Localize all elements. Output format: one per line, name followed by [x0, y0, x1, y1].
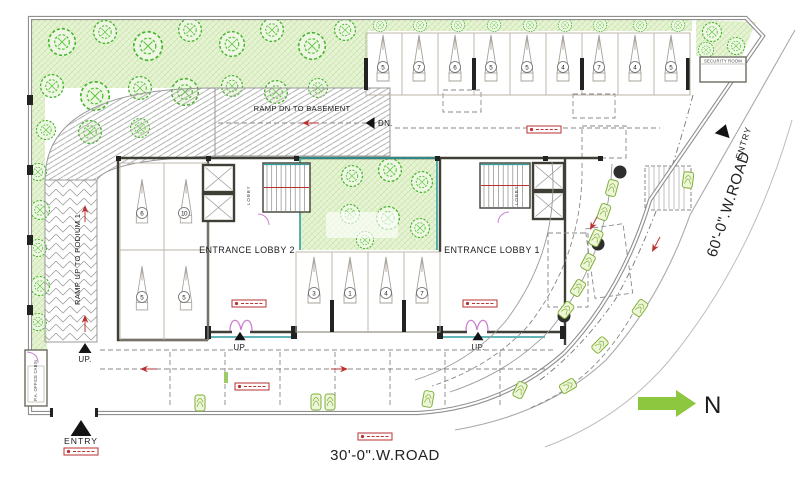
stall-number: 3	[312, 290, 316, 297]
stall-number: 5	[381, 64, 385, 71]
tree-icon	[379, 159, 402, 182]
tree-icon	[37, 121, 56, 140]
road-30-label: 30'-0".W.ROAD	[330, 447, 440, 464]
tree-icon	[451, 18, 464, 31]
stall-numbers-top: 5 7 6 5 5 4 7 4 5	[378, 62, 677, 73]
stall-number: 5	[669, 64, 673, 71]
tree-icon	[179, 19, 202, 42]
lobby-vertical-label: LOBBY	[514, 186, 519, 205]
ramp-dn-label: RAMP DN TO BASEMENT	[254, 104, 351, 113]
tree-icon	[373, 18, 386, 31]
label-box	[463, 300, 497, 307]
office-cabin-room: P.A. OFFICE CABIN	[25, 350, 47, 406]
up-label-lobby2: UP.	[233, 343, 246, 352]
label-box	[232, 300, 266, 307]
tree-icon	[412, 172, 433, 193]
staircase	[480, 163, 530, 208]
site-plan-page: RAMP UP TO PODIUM 1 UP. RAMP DN TO BASEM…	[0, 0, 800, 495]
tree-icon	[703, 23, 722, 42]
dn-label: DN.	[378, 119, 393, 128]
lift-icon	[203, 165, 234, 192]
tree-icon	[633, 18, 646, 31]
security-room: SECURITY ROOM	[700, 57, 746, 82]
entry-gate-opening	[52, 407, 96, 418]
stall-number: 10	[181, 210, 188, 217]
lift-icon	[203, 194, 234, 221]
stall-number: 1	[348, 290, 352, 297]
stall-number: 5	[140, 294, 144, 301]
tree-icon	[727, 37, 744, 54]
tree-icon	[335, 20, 356, 41]
tree-icon	[558, 18, 571, 31]
tree-icon	[523, 18, 536, 31]
lift-icon	[533, 192, 564, 219]
stall-number: 4	[561, 64, 565, 71]
tree-icon	[299, 33, 326, 60]
label-box	[527, 126, 561, 133]
lobby-vertical-label: LOBBY	[246, 186, 251, 205]
tree-icon	[94, 21, 117, 44]
label-box	[358, 433, 392, 440]
tree-icon	[698, 42, 713, 57]
staircase	[263, 163, 310, 212]
green-marker	[224, 372, 228, 383]
stall-number: 6	[453, 64, 457, 71]
watermark	[326, 212, 398, 238]
tree-icon	[261, 19, 284, 42]
site-plan-svg: RAMP UP TO PODIUM 1 UP. RAMP DN TO BASEM…	[0, 0, 800, 495]
stall-number: 5	[489, 64, 493, 71]
entrance-lobby-2-label: ENTRANCE LOBBY 2	[199, 245, 295, 255]
label-box	[64, 448, 98, 455]
tree-icon	[411, 219, 430, 238]
office-cabin-label: P.A. OFFICE CABIN	[33, 360, 38, 401]
ramp-up-label: RAMP UP TO PODIUM 1	[73, 214, 82, 305]
tree-icon	[342, 166, 363, 187]
tree-icon	[487, 18, 500, 31]
up-label-ramp: UP.	[78, 355, 91, 364]
entry-bottom-label: ENTRY	[64, 436, 98, 446]
tree-icon	[220, 32, 245, 57]
tree-dot-icon	[614, 166, 627, 179]
stall-number: 7	[420, 290, 424, 297]
tree-icon	[41, 75, 64, 98]
tree-icon	[593, 18, 606, 31]
tree-icon	[134, 32, 163, 61]
stall-number: 7	[597, 64, 601, 71]
stall-number: 6	[140, 210, 144, 217]
stall-number: 5	[182, 294, 186, 301]
ramp-dn-to-basement: RAMP DN TO BASEMENT DN.	[215, 88, 393, 156]
north-arrow-shaft	[638, 397, 676, 410]
north-label: N	[704, 392, 721, 419]
entrance-lobby-1-label: ENTRANCE LOBBY 1	[444, 245, 540, 255]
stall-number: 4	[633, 64, 637, 71]
tree-icon	[49, 29, 76, 56]
tree-icon	[413, 18, 426, 31]
lift-icon	[533, 163, 564, 190]
label-box	[235, 383, 269, 390]
security-room-label: SECURITY ROOM	[704, 59, 742, 64]
tree-icon	[671, 18, 684, 31]
stall-number: 7	[417, 64, 421, 71]
stall-number: 5	[525, 64, 529, 71]
stall-number: 4	[384, 290, 388, 297]
